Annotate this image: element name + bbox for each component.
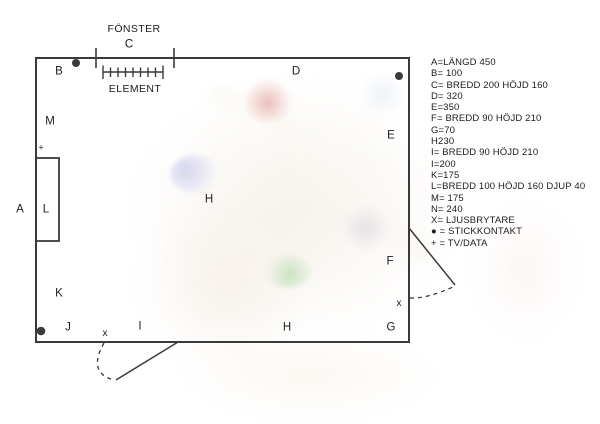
room-label-h-center: H [205,194,213,206]
legend-line: X= LJUSBRYTARE [431,215,585,226]
legend-line: M= 175 [431,193,585,204]
outlet-dot-icon [72,59,80,67]
floor-plan-page: { "plan": { "window_label": "FÖNSTER", "… [0,0,600,424]
room-label-j: J [65,322,71,334]
legend-line: C= BREDD 200 HÖJD 160 [431,80,585,91]
legend-line: F= BREDD 90 HÖJD 210 [431,113,585,124]
legend-line: D= 320 [431,91,585,102]
legend-line: G=70 [431,125,585,136]
legend-line: L=BREDD 100 HÖJD 160 DJUP 40 [431,181,585,192]
room-label-m: M [45,116,55,128]
outlet-dot-icon [37,327,46,336]
room-label-l: L [43,204,49,216]
radiator-caption: ELEMENT [109,84,161,95]
room-label-i: I [138,321,141,333]
legend-line: H230 [431,136,585,147]
room-label-c: C [125,39,133,51]
room-label-g: G [387,322,396,334]
room-label-b: B [55,66,63,78]
radiator-symbol [103,66,163,80]
legend: A=LÄNGD 450 B= 100 C= BREDD 200 HÖJD 160… [431,57,585,249]
legend-line: I=200 [431,159,585,170]
room-label-f: F [386,256,393,268]
tv-data-marker: + [38,144,43,153]
door-bottom-swing-arc [97,343,114,380]
cabinet-l [36,158,59,241]
door-right-swing-arc [410,286,455,298]
light-switch-marker-right: x [397,299,402,309]
room-label-d: D [292,66,300,78]
legend-line: A=LÄNGD 450 [431,57,585,68]
legend-line: B= 100 [431,68,585,79]
room-label-h-bottom: H [283,322,291,334]
outlet-dot-icon [395,72,403,80]
legend-line: E=350 [431,102,585,113]
room-label-k: K [55,288,63,300]
legend-line: I= BREDD 90 HÖJD 210 [431,147,585,158]
legend-line-outlet: ● = STICKKONTAKT [431,226,585,237]
room-label-e: E [387,130,395,142]
window-caption: FÖNSTER [108,24,161,35]
legend-line-tvdata: + = TV/DATA [431,238,585,249]
door-bottom-leaf [116,342,178,380]
light-switch-marker-bottom: x [103,329,108,339]
room-label-a: A [16,204,24,216]
legend-line: K=175 [431,170,585,181]
legend-line: N= 240 [431,204,585,215]
room-outline [36,58,409,342]
